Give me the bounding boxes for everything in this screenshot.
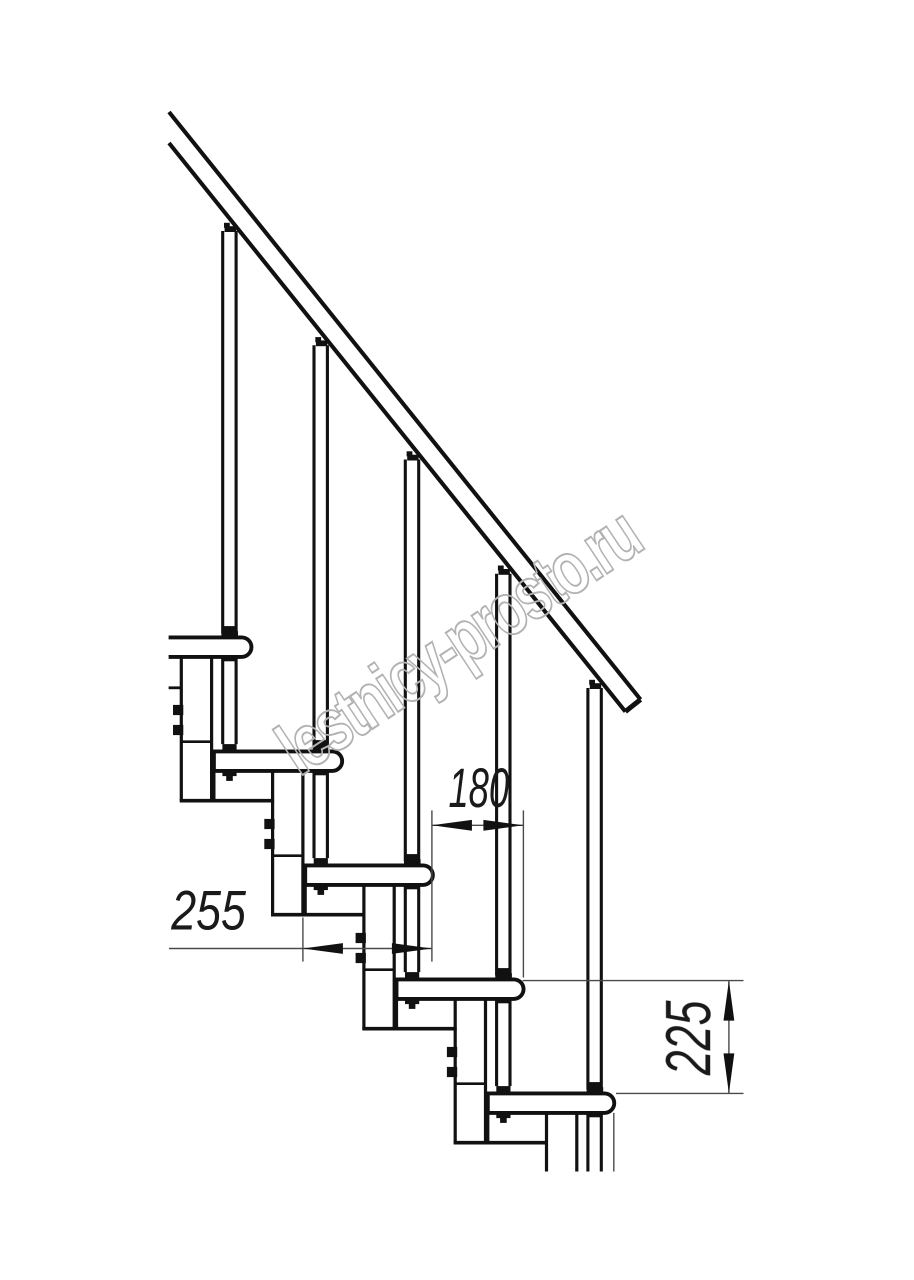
svg-text:180: 180 xyxy=(448,757,509,820)
svg-text:255: 255 xyxy=(170,879,246,942)
svg-text:225: 225 xyxy=(652,1000,724,1076)
